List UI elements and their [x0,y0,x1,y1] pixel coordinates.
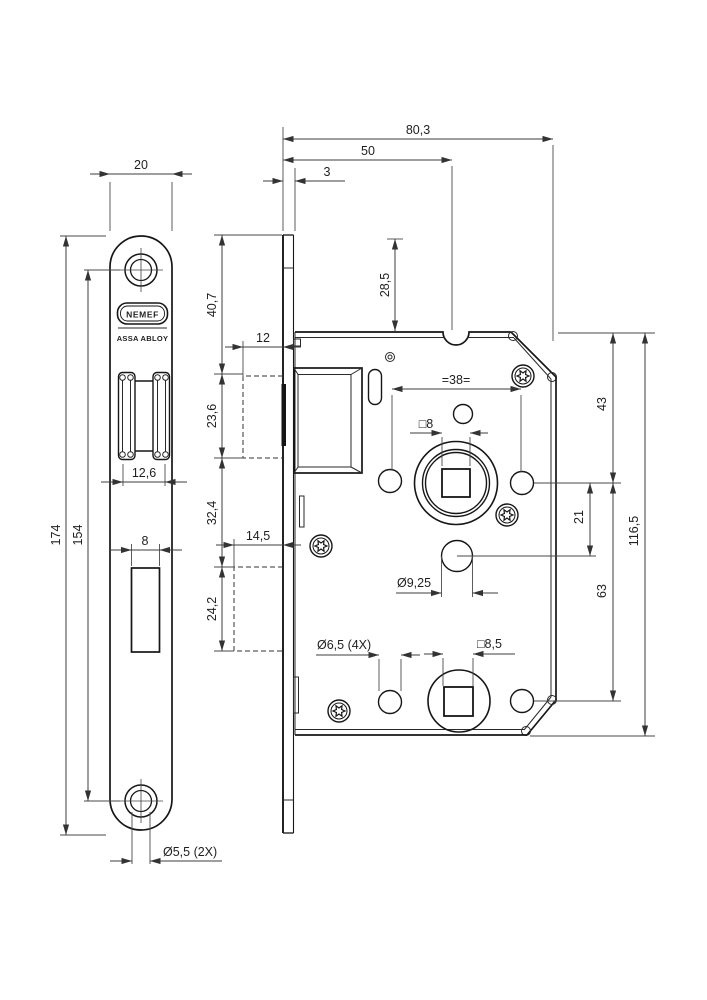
logo-text: NEMEF [126,310,159,320]
dim-lower-follower-square: □8,5 [477,637,502,651]
dim-fixing-holes-dia: Ø6,5 (4X) [317,638,371,652]
torx-screw-mid-right [496,504,518,526]
fixing-hole-bottom-right [511,690,534,713]
dim-hole-spacing: 154 [71,525,85,546]
faceplate-outline [110,236,172,830]
dim-follower-to-lower-follower: 63 [595,584,609,598]
brand-logo: NEMEF ASSA ABLOY [117,303,169,343]
latch-bolt-edge [282,384,287,446]
latch-projection-dashed [243,376,283,458]
dim-deadbolt-cutout-depth: 14,5 [246,529,270,543]
dim-cylinder-hole-dia: Ø9,25 [397,576,431,590]
case-outline [294,332,557,736]
small-screw-center [388,355,392,359]
edge-notch [294,677,299,713]
dim-faceplate-thickness: 3 [324,165,331,179]
lower-follower [428,670,490,732]
fixing-hole-left [379,470,402,493]
fixing-hole-right [511,472,534,495]
upper-round-hole [454,405,473,424]
bottom-screw-hole [119,779,163,823]
latch-cutout [119,373,170,460]
dim-follower-to-cylinder: 21 [572,510,586,524]
dim-plate-width: 20 [134,158,148,172]
dim-top-to-latch: 40,7 [205,293,219,317]
mortise-lock-drawing: NEMEF ASSA ABLOY 20 [0,0,707,1000]
dim-deadbolt-cutout-width: 8 [142,534,149,548]
deadbolt-projection-dashed [234,567,283,651]
faceplate-edge [282,235,294,833]
dim-screw-holes: Ø5,5 (2X) [163,845,217,859]
edge-slot [300,496,305,527]
dim-case-top-to-follower: 43 [595,397,609,411]
spindle-square-hole [442,469,470,497]
dim-deadbolt-cutout-height: 24,2 [205,597,219,621]
spindle-hub [415,442,498,525]
torx-screw-bottom-left [328,700,350,722]
torx-screw-top-right [512,365,534,387]
dim-plate-length: 174 [49,525,63,546]
fixing-hole-bottom-left [379,691,402,714]
side-view-dimensions: 80,3 50 3 28,5 40,7 23,6 32,4 24,2 12 [205,123,655,736]
dim-latch-cutout-depth: 12 [256,331,270,345]
dim-backset: 50 [361,144,375,158]
deadbolt-cutout [132,568,160,652]
dim-top-to-case: 28,5 [378,273,392,297]
dim-overall-depth: 80,3 [406,123,430,137]
dim-follower-square: □8 [419,417,434,431]
dim-case-height: 116,5 [627,516,641,546]
lower-square-hole [444,687,473,716]
torx-screw-mid-left [310,535,332,557]
latch-bolt [294,368,362,473]
small-screw [386,353,395,362]
dim-latch-cutout-width: 12,6 [132,466,156,480]
front-view-faceplate: NEMEF ASSA ABLOY [110,236,172,830]
technical-drawing-page: NEMEF ASSA ABLOY 20 [0,0,707,1000]
dim-latch-to-deadbolt: 32,4 [205,501,219,525]
top-screw-hole [119,248,163,292]
oblong-slot [369,370,382,405]
dim-screw-hole-spacing: =38= [442,373,471,387]
dim-latch-cutout-height: 23,6 [205,404,219,428]
brand-sub-text: ASSA ABLOY [117,334,169,343]
